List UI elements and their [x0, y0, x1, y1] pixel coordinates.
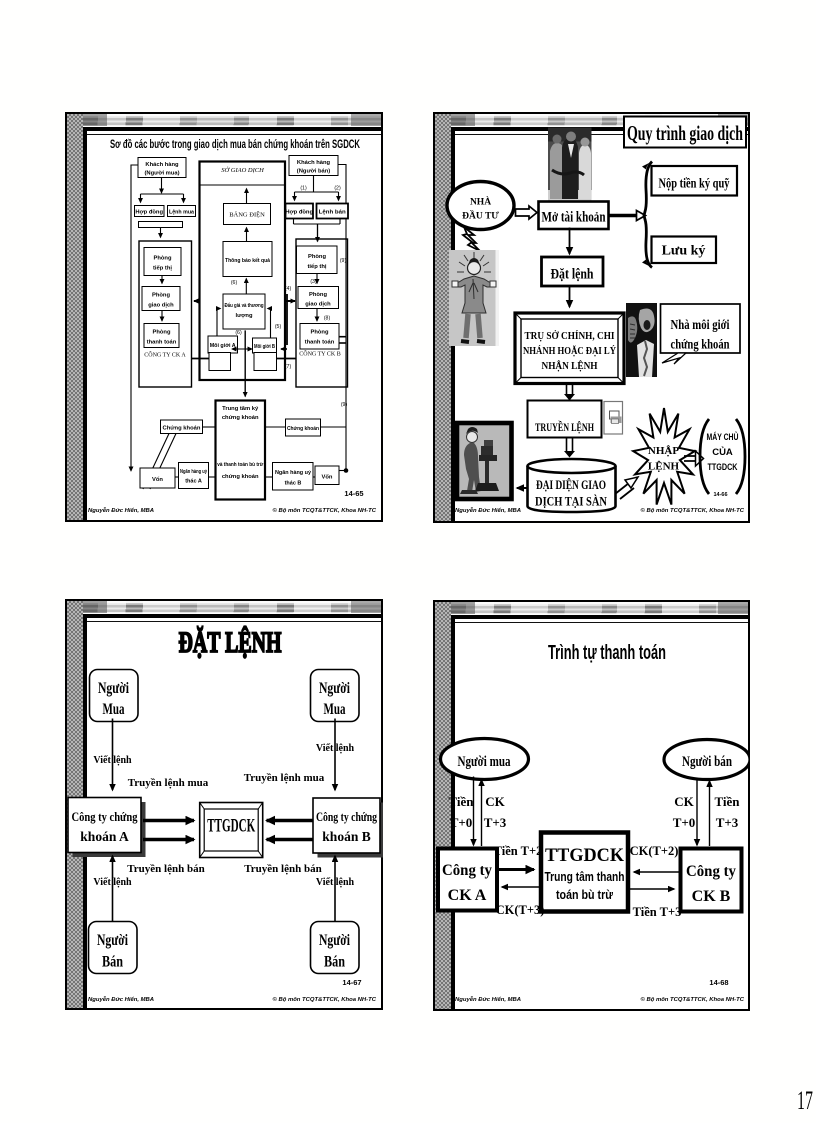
svg-text:Công ty: Công ty	[442, 862, 492, 879]
svg-text:Phòng: Phòng	[310, 330, 328, 336]
svg-text:CỦA: CỦA	[712, 446, 733, 458]
svg-text:Môi giới A: Môi giới A	[210, 343, 236, 349]
svg-text:© Bộ môn TCQT&TTCK, Khoa NH-TC: © Bộ môn TCQT&TTCK, Khoa NH-TC	[273, 996, 377, 1003]
svg-text:Tiền: Tiền	[714, 794, 740, 809]
svg-text:Mua: Mua	[324, 701, 346, 718]
svg-text:Quy trình giao dịch: Quy trình giao dịch	[627, 121, 743, 145]
svg-text:Phòng: Phòng	[308, 254, 326, 260]
svg-text:NHÁNH HOẶC ĐẠI LÝ: NHÁNH HOẶC ĐẠI LÝ	[523, 344, 616, 357]
svg-text:(6): (6)	[235, 330, 242, 336]
svg-text:Trình tự thanh toán: Trình tự thanh toán	[548, 642, 666, 664]
svg-text:thanh toán: thanh toán	[147, 340, 177, 346]
svg-text:Người: Người	[319, 680, 350, 697]
svg-text:DỊCH TẠI SÀN: DỊCH TẠI SÀN	[535, 494, 607, 509]
svg-text:Đấu giá và thương: Đấu giá và thương	[225, 302, 264, 309]
svg-text:Trung tâm thanh: Trung tâm thanh	[545, 870, 625, 884]
svg-text:T+0: T+0	[450, 815, 473, 830]
svg-text:thác A: thác A	[185, 479, 202, 485]
svg-text:(6): (6)	[231, 280, 238, 286]
svg-text:Tiền: Tiền	[448, 794, 474, 809]
svg-text:Chứng khoán: Chứng khoán	[163, 426, 201, 432]
svg-text:TRỤ SỞ CHÍNH, CHI: TRỤ SỞ CHÍNH, CHI	[525, 330, 615, 342]
svg-text:© Bộ môn TCQT&TTCK, Khoa NH-TC: © Bộ môn TCQT&TTCK, Khoa NH-TC	[273, 507, 377, 514]
svg-text:CK A: CK A	[448, 887, 487, 904]
svg-text:chứng khoán: chứng khoán	[222, 415, 259, 421]
svg-text:(5): (5)	[275, 324, 282, 330]
svg-text:Truyền lệnh mua: Truyền lệnh mua	[244, 772, 325, 784]
svg-text:Vốn: Vốn	[322, 474, 333, 481]
svg-text:Ngân hàng uỷ: Ngân hàng uỷ	[275, 470, 312, 476]
svg-text:Môi giới B: Môi giới B	[254, 344, 275, 350]
svg-text:chứng khoán: chứng khoán	[222, 474, 259, 480]
svg-text:Phòng: Phòng	[152, 293, 170, 299]
svg-text:(Người bán): (Người bán)	[297, 169, 331, 175]
svg-text:Nộp tiền ký quỹ: Nộp tiền ký quỹ	[659, 177, 730, 192]
svg-text:ĐẠI DIỆN GIAO: ĐẠI DIỆN GIAO	[536, 477, 606, 492]
svg-text:BẢNG ĐIỆN: BẢNG ĐIỆN	[229, 211, 265, 219]
svg-text:Người: Người	[319, 932, 350, 949]
svg-text:Người mua: Người mua	[458, 754, 512, 770]
svg-text:TTGDCK: TTGDCK	[545, 846, 625, 866]
svg-text:toán bù trừ: toán bù trừ	[556, 888, 614, 902]
svg-text:khoán A: khoán A	[80, 829, 129, 844]
svg-text:14-65: 14-65	[344, 489, 363, 498]
svg-text:(9): (9)	[341, 402, 348, 408]
svg-text:T+0: T+0	[673, 815, 696, 830]
svg-text:Vốn: Vốn	[152, 476, 163, 483]
svg-text:và thanh toán bù trừ: và thanh toán bù trừ	[217, 462, 264, 468]
svg-text:Chứng khoán: Chứng khoán	[287, 426, 319, 432]
svg-text:TTGDCK: TTGDCK	[207, 816, 255, 837]
svg-text:CK(T+2): CK(T+2)	[630, 844, 679, 858]
svg-text:Sơ đồ các bước trong giao dịch: Sơ đồ các bước trong giao dịch mua bán c…	[110, 139, 360, 151]
svg-text:Hợp đồng: Hợp đồng	[285, 210, 313, 216]
svg-text:Công ty chứng: Công ty chứng	[316, 809, 377, 824]
svg-text:TRUYỀN LỆNH: TRUYỀN LỆNH	[535, 419, 594, 434]
svg-text:Người: Người	[98, 680, 129, 697]
svg-text:(9): (9)	[340, 258, 347, 264]
svg-text:Tiền T+2: Tiền T+2	[494, 844, 543, 858]
svg-text:lượng: lượng	[235, 313, 252, 319]
svg-text:NHẬN LỆNH: NHẬN LỆNH	[542, 359, 598, 372]
svg-text:thanh toán: thanh toán	[305, 340, 335, 346]
svg-text:Lưu ký: Lưu ký	[662, 244, 706, 259]
svg-text:Nhà môi giới: Nhà môi giới	[671, 317, 730, 332]
svg-text:(2): (2)	[334, 186, 341, 192]
svg-text:SỞ GIAO DỊCH: SỞ GIAO DỊCH	[221, 166, 264, 174]
svg-text:Mở tài khoản: Mở tài khoản	[542, 210, 606, 226]
svg-text:© Bộ môn TCQT&TTCK, Khoa NH-TC: © Bộ môn TCQT&TTCK, Khoa NH-TC	[641, 507, 745, 514]
svg-text:giao dịch: giao dịch	[305, 302, 331, 308]
svg-text:ĐẶT LỆNH: ĐẶT LỆNH	[179, 626, 282, 659]
svg-text:Nguyễn Đức Hiển, MBA: Nguyễn Đức Hiển, MBA	[455, 507, 521, 514]
svg-text:CÔNG TY CK A: CÔNG TY CK A	[144, 351, 186, 359]
svg-text:(1): (1)	[300, 186, 307, 192]
svg-text:khoán B: khoán B	[322, 829, 370, 844]
svg-text:Mua: Mua	[103, 701, 125, 718]
svg-text:Bán: Bán	[102, 954, 123, 971]
svg-text:Bán: Bán	[324, 954, 345, 971]
svg-text:© Bộ môn TCQT&TTCK, Khoa NH-TC: © Bộ môn TCQT&TTCK, Khoa NH-TC	[641, 996, 745, 1003]
svg-text:(7): (7)	[285, 364, 292, 370]
svg-text:Truyền lệnh bán: Truyền lệnh bán	[244, 863, 321, 875]
svg-text:Công ty: Công ty	[686, 863, 736, 880]
svg-text:Lệnh bán: Lệnh bán	[319, 210, 346, 216]
svg-text:Trung tâm ký: Trung tâm ký	[222, 406, 259, 412]
svg-text:Nguyễn Đức Hiển, MBA: Nguyễn Đức Hiển, MBA	[88, 996, 154, 1003]
svg-text:Nguyễn Đức Hiển, MBA: Nguyễn Đức Hiển, MBA	[455, 996, 521, 1003]
svg-text:NHÀ: NHÀ	[470, 196, 491, 208]
svg-text:14-66: 14-66	[713, 492, 727, 498]
svg-text:Công ty chứng: Công ty chứng	[72, 809, 138, 824]
svg-text:CK: CK	[674, 794, 694, 809]
svg-text:thác B: thác B	[285, 481, 302, 487]
svg-text:(8): (8)	[324, 316, 331, 322]
svg-text:Đặt lệnh: Đặt lệnh	[551, 267, 595, 283]
svg-text:Thông báo kết quả: Thông báo kết quả	[225, 257, 271, 264]
svg-text:MÁY CHỦ: MÁY CHỦ	[707, 431, 739, 443]
svg-text:CÔNG TY CK B: CÔNG TY CK B	[299, 350, 341, 358]
svg-text:tiếp thị: tiếp thị	[308, 263, 327, 270]
svg-text:T+3: T+3	[716, 815, 739, 830]
svg-text:Tiền T+3: Tiền T+3	[633, 905, 682, 919]
svg-text:(Người mua): (Người mua)	[144, 171, 179, 177]
svg-text:Phòng: Phòng	[152, 330, 170, 336]
svg-text:Hợp đồng: Hợp đồng	[135, 210, 163, 216]
svg-text:CK(T+3): CK(T+3)	[496, 903, 545, 917]
svg-text:T+3: T+3	[484, 815, 507, 830]
svg-text:14-67: 14-67	[342, 978, 361, 987]
svg-text:Truyền lệnh mua: Truyền lệnh mua	[128, 777, 209, 789]
svg-text:chứng khoán: chứng khoán	[671, 337, 730, 352]
svg-text:tiếp thị: tiếp thị	[153, 265, 172, 272]
svg-text:Lệnh mua: Lệnh mua	[169, 210, 195, 216]
svg-text:Truyền lệnh bán: Truyền lệnh bán	[127, 863, 204, 875]
svg-text:Phòng: Phòng	[153, 256, 171, 262]
svg-text:TTGDCK: TTGDCK	[708, 462, 738, 473]
svg-text:14-68: 14-68	[709, 978, 728, 987]
svg-text:Người bán: Người bán	[682, 754, 732, 770]
svg-text:Nguyễn Đức Hiển, MBA: Nguyễn Đức Hiển, MBA	[88, 507, 154, 514]
svg-text:(3): (3)	[310, 279, 317, 285]
svg-text:Ngân hàng uỷ: Ngân hàng uỷ	[180, 469, 208, 475]
svg-text:CK B: CK B	[692, 888, 731, 905]
svg-text:NHẬP: NHẬP	[648, 444, 679, 457]
svg-text:Khách hàng: Khách hàng	[145, 162, 179, 168]
svg-text:Phòng: Phòng	[309, 292, 327, 298]
svg-text:LỆNH: LỆNH	[648, 460, 680, 473]
svg-text:CK: CK	[485, 794, 505, 809]
svg-text:giao dịch: giao dịch	[148, 303, 174, 309]
svg-text:Người: Người	[97, 932, 128, 949]
svg-text:Khách hàng: Khách hàng	[297, 160, 331, 166]
svg-text:(4): (4)	[285, 286, 292, 292]
